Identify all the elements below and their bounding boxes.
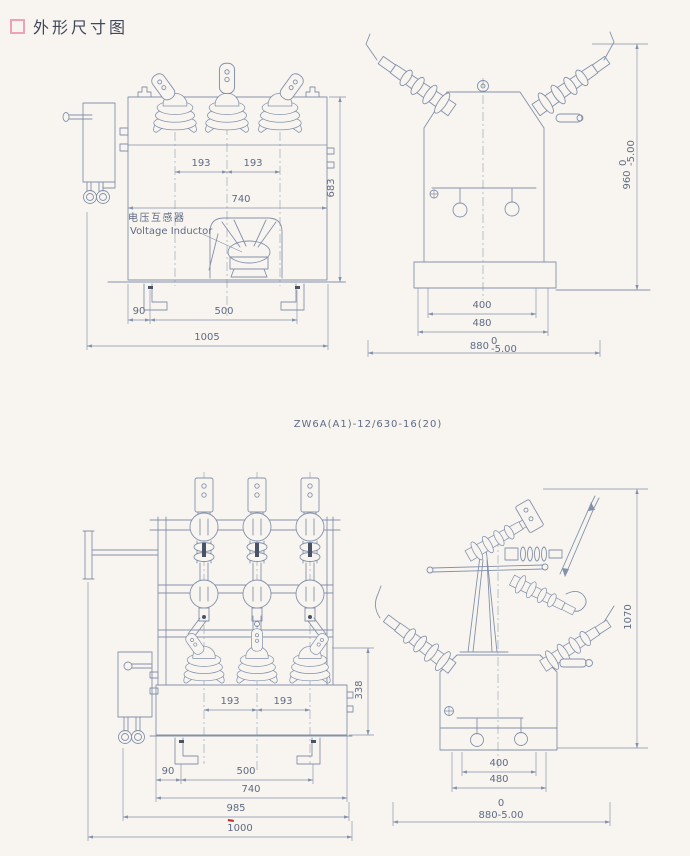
view-bottom-side-breaker-isolator: 1070 400 480 0 880-5.00: [375, 489, 648, 826]
drawing-page: 外形尺寸图: [0, 0, 690, 856]
dim-depth: 880-5.00: [479, 810, 524, 821]
dim-base-hole-spacing: 400: [472, 300, 491, 311]
voltage-inductor-label-cn: 电压互感器: [128, 211, 186, 224]
dim-overall-width: 1005: [194, 332, 219, 343]
dim-height: 683: [326, 178, 337, 197]
red-check-mark: [228, 819, 234, 822]
dim-overall-height: 960: [622, 170, 633, 189]
dim-foot-offset: 90: [162, 766, 175, 777]
dim-overall-width: 1000: [227, 823, 252, 834]
dim-phase-spacing-1: 193: [220, 696, 239, 707]
dim-base-hole-spacing: 400: [489, 758, 508, 769]
dim-depth-tol-upper: 0: [498, 798, 504, 809]
model-label: ZW6A(A1)-12/630-16(20): [294, 419, 443, 430]
dim-foot-spacing: 500: [236, 766, 255, 777]
dim-base-width: 480: [489, 774, 508, 785]
dim-frame-width: 985: [226, 803, 245, 814]
dim-depth: 880: [470, 341, 489, 352]
dim-tank-width: 740: [231, 194, 250, 205]
view-top-side-breaker: 400 480 880 0 -5.00 960 0 -5.00: [366, 32, 650, 357]
dim-phase-spacing-2: 193: [243, 158, 262, 169]
dim-phase-spacing-1: 193: [191, 158, 210, 169]
dim-height-tol-lower: -5.00: [626, 140, 637, 166]
dim-foot-offset: 90: [133, 306, 146, 317]
dim-phase-spacing-2: 193: [273, 696, 292, 707]
dim-overall-height: 1070: [623, 604, 634, 629]
dimension-drawing: 193 193 740 电压互感器 Voltage Inductor 90 50…: [0, 0, 690, 856]
view-top-front-breaker: 193 193 740 电压互感器 Voltage Inductor 90 50…: [63, 63, 346, 350]
voltage-inductor-label-en: Voltage Inductor: [130, 226, 213, 237]
dim-base-width: 480: [472, 318, 491, 329]
dim-depth-tol-lower: -5.00: [491, 344, 517, 355]
dim-foot-spacing: 500: [214, 306, 233, 317]
view-bottom-front-breaker-isolator: 193 193 338 90 500 740 985: [83, 472, 374, 841]
dim-bushing-height: 338: [354, 680, 365, 699]
dim-tank-width: 740: [241, 784, 260, 795]
